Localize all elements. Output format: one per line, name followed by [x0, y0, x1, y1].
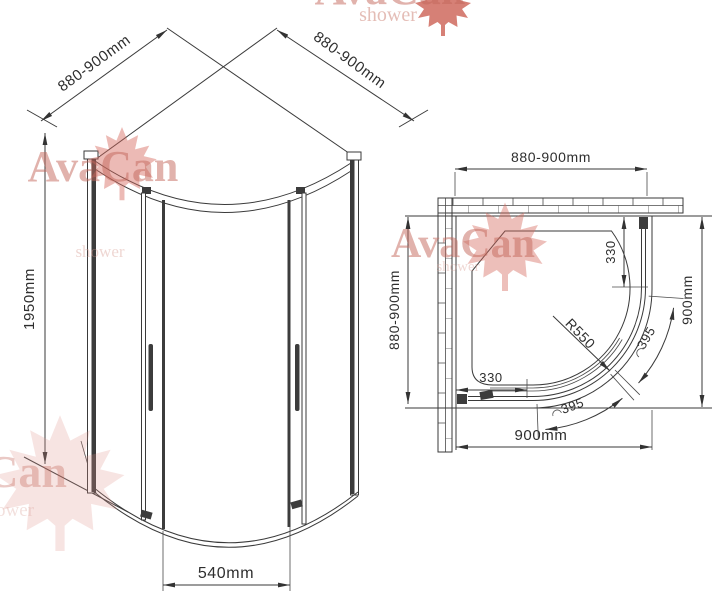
sliding-door-inner — [490, 338, 620, 388]
wall-profile-top — [639, 217, 648, 229]
ext-arc-bottom-1 — [611, 374, 634, 400]
watermark-brand: AvaCan — [0, 446, 67, 497]
dim-label-left-wall: 880-900mm — [55, 31, 134, 95]
drawing-canvas: 880-900mm 880-900mm 1950mm — [0, 0, 721, 600]
watermark-subtitle: shower — [0, 500, 35, 521]
door-handle-right — [295, 344, 300, 411]
dim-label-arc-right: 395 — [634, 324, 659, 352]
door-edge-rail-right — [288, 200, 291, 527]
corner-tick-right — [399, 110, 428, 127]
dim-label-door: 540mm — [198, 565, 254, 582]
technical-drawing: 880-900mm 880-900mm 1950mm — [0, 0, 721, 600]
watermark-subtitle: shower — [75, 242, 124, 261]
dim-label-330-bottom: 330 — [479, 370, 503, 385]
tray-curved-front — [533, 289, 652, 408]
plan-view: 880-900mm 880-900mm 900mm 900mm 330 330 … — [386, 149, 712, 452]
fixed-panel-rail-left — [142, 193, 146, 520]
dim-label-330-right: 330 — [603, 240, 618, 264]
dim-label-height: 1950mm — [21, 268, 38, 330]
dim-label-radius: R550 — [562, 315, 598, 352]
bottom-rail-outer — [93, 491, 358, 547]
watermark-bottom-left: AvaCan shower — [0, 415, 124, 551]
dim-label-arc-bottom: 395 — [559, 395, 586, 417]
door-handle-left — [149, 344, 154, 411]
door-stop-bracket — [479, 390, 493, 400]
wall-top — [438, 198, 683, 213]
watermark-mid-left: AvaCan shower — [28, 127, 179, 261]
bottom-guide-right — [290, 499, 303, 509]
dim-label-plan-top: 880-900mm — [511, 149, 591, 165]
ext-arc-right-2 — [615, 370, 640, 395]
wall-profile-left — [457, 394, 467, 404]
left-post-profile — [92, 159, 96, 492]
dim-label-plan-left: 880-900mm — [386, 270, 402, 350]
right-post-profile — [351, 160, 355, 494]
watermark-subtitle: shower — [359, 4, 417, 26]
bottom-rail-inner — [93, 487, 358, 543]
dim-line-right-wall — [277, 30, 414, 121]
door-edge-rail-left — [162, 200, 165, 529]
arc-length-symbol-bottom — [551, 409, 561, 416]
dim-label-plan-bottom: 900mm — [514, 427, 567, 444]
dim-label-plan-right: 900mm — [679, 275, 695, 325]
watermark-top-right: AvaCan shower — [315, 0, 471, 36]
sliding-door-outer — [490, 340, 622, 392]
watermark-brand: AvaCan — [28, 142, 179, 191]
watermark-subtitle: shower — [436, 259, 479, 275]
dim-line-left-wall — [41, 30, 167, 121]
right-post-cap — [347, 152, 361, 160]
fixed-panel-rail-right — [302, 193, 306, 524]
